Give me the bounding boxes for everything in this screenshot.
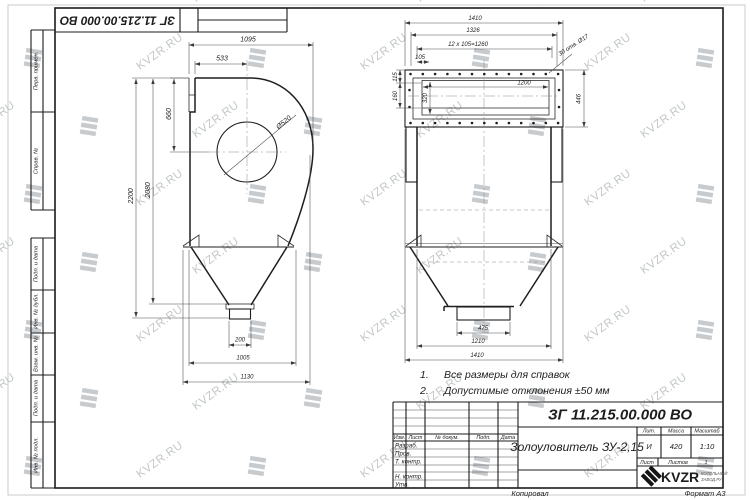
- tb-part-name: Золоуловитель ЗУ-2,15: [510, 440, 644, 454]
- kvzr-logo-subtext-2: ЗАВОД.РУ: [701, 477, 723, 482]
- tb-kopiroval-label: Копировал: [511, 489, 549, 498]
- note-2-text: Допустимые отклонения ±50 мм: [443, 385, 610, 397]
- dim-2080: 2080: [145, 182, 152, 199]
- drawing-sheet: KVZR.RUKVZR.RUKVZR.RUKVZR.RUKVZR.RUKVZR.…: [0, 0, 750, 500]
- tb-col-izm: Изм.: [394, 435, 406, 441]
- margin-label-podp-data-2: Подп. и дата: [34, 379, 40, 416]
- tb-lit-value: И: [646, 442, 652, 451]
- tb-col-list: Лист: [408, 435, 423, 441]
- dim-320: 320: [423, 92, 429, 103]
- kvzr-logo-subtext-1: КОТЕЛЬНЫЙ: [701, 471, 727, 476]
- dim-1326: 1326: [466, 28, 480, 34]
- dim-1130: 1130: [241, 375, 255, 381]
- note-2-number: 2.: [419, 385, 429, 397]
- dim-2200: 2200: [128, 188, 135, 205]
- left-view: [183, 60, 313, 319]
- dim-1095: 1095: [240, 37, 256, 44]
- dim-pitch: 12 x 105=1260: [448, 42, 489, 48]
- dim-533: 533: [216, 56, 228, 63]
- margin-label-perv-primen: Перв. примен.: [34, 52, 40, 91]
- corner-stamp: ЗГ 11.215.00.000 ВО: [55, 8, 287, 32]
- dim-1410-bottom: 1410: [470, 353, 484, 359]
- margin-label-inv-podl: Инв. № подл.: [34, 437, 40, 473]
- tb-scale-label: Масштаб: [694, 429, 720, 435]
- tb-row-prov: Пров.: [395, 451, 411, 458]
- margin-label-sprav-no: Справ. №: [34, 148, 40, 174]
- kvzr-logo-icon: [641, 466, 662, 487]
- technical-drawing: Перв. примен. Справ. № Подп. и дата Инв.…: [0, 0, 750, 500]
- dim-1005: 1005: [236, 356, 250, 362]
- dim-475: 475: [478, 326, 489, 332]
- kvzr-logo: KVZR КОТЕЛЬНЫЙ ЗАВОД.РУ: [641, 466, 728, 487]
- tb-row-tkontr: Т. контр.: [395, 459, 422, 466]
- dim-1410-top: 1410: [468, 16, 482, 22]
- tb-row-utv: Утв.: [394, 482, 409, 489]
- dim-1210: 1210: [471, 339, 485, 345]
- margin-label-vzam-inv: Взам. инв. №: [34, 336, 40, 372]
- dim-160: 160: [393, 90, 399, 101]
- tb-list-label: Лист: [639, 460, 654, 466]
- notes: 1. Все размеры для справок 2. Допустимые…: [419, 369, 610, 397]
- tb-massa-value: 420: [670, 442, 683, 451]
- tb-col-podp: Подп.: [476, 435, 490, 441]
- dim-diameter-520: Ø520: [274, 115, 292, 132]
- tb-row-razrab: Разраб.: [395, 443, 417, 450]
- note-1-text: Все размеры для справок: [444, 369, 571, 381]
- margin-boxes: Перв. примен. Справ. № Подп. и дата Инв.…: [31, 30, 55, 488]
- kvzr-logo-text: KVZR: [661, 469, 699, 485]
- tb-lit-label: Лит.: [642, 429, 656, 435]
- note-1-number: 1.: [420, 369, 429, 381]
- tb-massa-label: Масса: [668, 429, 684, 435]
- dim-200: 200: [234, 338, 246, 344]
- dim-105: 105: [415, 55, 426, 61]
- corner-stamp-designation: ЗГ 11.215.00.000 ВО: [59, 14, 175, 28]
- tb-format-label: Формат А3: [684, 489, 726, 498]
- tb-listov-value: 1: [705, 460, 708, 466]
- margin-label-inv-dubl: Инв. № дубл.: [34, 293, 40, 329]
- dim-115: 115: [393, 72, 399, 82]
- tb-listov-label: Листов: [667, 460, 688, 466]
- tb-row-nkontr: Н. контр.: [395, 474, 423, 481]
- right-view-dimensions: 1410 1326 12 x 105=1260 105 1200 115 160…: [393, 16, 591, 363]
- dim-446: 446: [577, 93, 583, 104]
- margin-label-podp-data-1: Подп. и дата: [34, 245, 40, 282]
- dim-660: 660: [166, 108, 173, 120]
- dim-1200: 1200: [517, 81, 531, 87]
- tb-col-dokum: № докум.: [435, 435, 459, 441]
- tb-designation: ЗГ 11.215.00.000 ВО: [548, 407, 692, 424]
- title-block: Изм. Лист № докум. Подп. Дата Разраб. Пр…: [393, 402, 727, 498]
- tb-scale-value: 1:10: [700, 442, 715, 451]
